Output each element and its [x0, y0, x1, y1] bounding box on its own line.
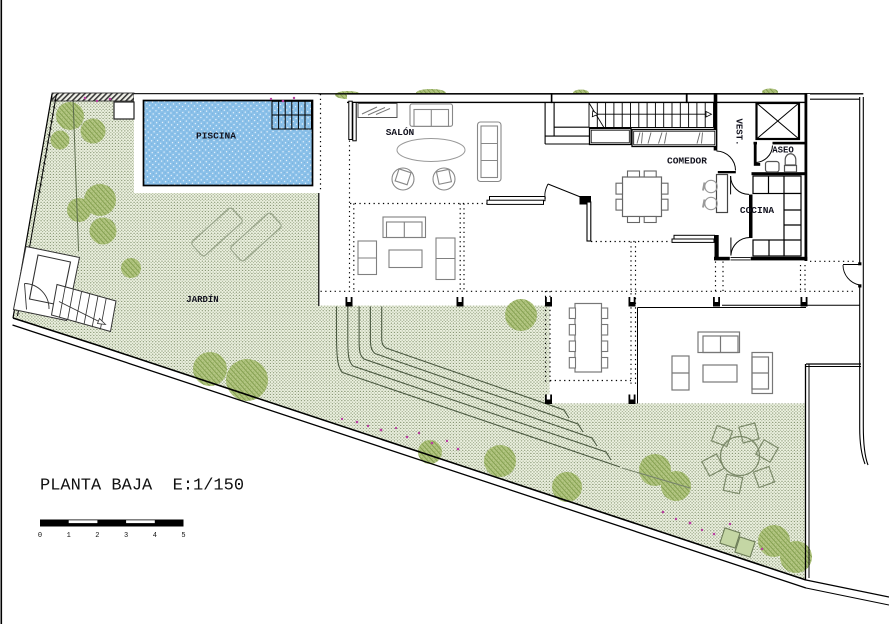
svg-text:PISCINA: PISCINA: [196, 131, 236, 142]
svg-text:COCINA: COCINA: [740, 205, 775, 216]
svg-text:1: 1: [67, 532, 71, 540]
svg-text:0: 0: [38, 532, 42, 540]
svg-text:SALÓN: SALÓN: [386, 127, 415, 138]
svg-text:JARDÍN: JARDÍN: [186, 294, 218, 305]
svg-text:VEST.: VEST.: [734, 118, 744, 145]
svg-text:ASEO: ASEO: [772, 146, 794, 156]
svg-text:COMEDOR: COMEDOR: [667, 156, 707, 167]
svg-text:2: 2: [95, 532, 99, 540]
svg-text:5: 5: [181, 532, 185, 540]
svg-text:3: 3: [124, 532, 128, 540]
svg-text:4: 4: [153, 532, 157, 540]
svg-text:PLANTA BAJA E:1/150: PLANTA BAJA E:1/150: [40, 477, 244, 496]
